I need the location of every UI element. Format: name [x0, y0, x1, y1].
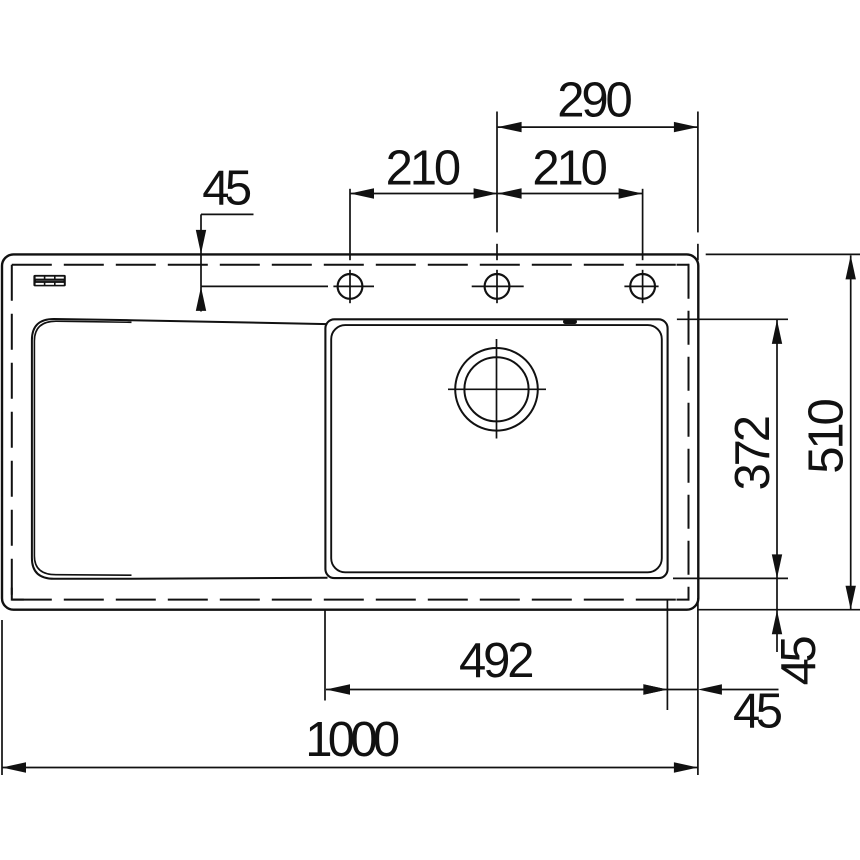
svg-text:492: 492 [459, 634, 535, 688]
svg-text:210: 210 [386, 142, 462, 196]
svg-text:510: 510 [800, 398, 854, 474]
svg-text:290: 290 [557, 74, 633, 128]
svg-text:1000: 1000 [305, 713, 400, 767]
svg-text:210: 210 [532, 142, 608, 196]
svg-text:45: 45 [772, 635, 826, 685]
svg-text:45: 45 [733, 685, 783, 739]
svg-text:372: 372 [726, 415, 780, 491]
svg-text:45: 45 [202, 162, 252, 216]
